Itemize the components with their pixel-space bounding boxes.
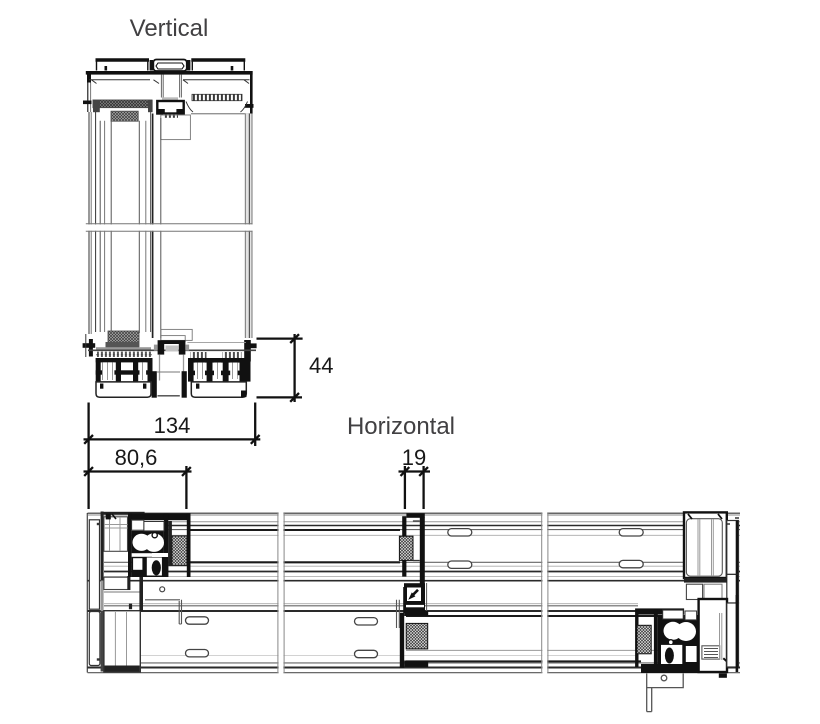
svg-text:44: 44 [309,353,333,378]
svg-text:134: 134 [154,413,191,438]
svg-text:80,6: 80,6 [115,445,158,470]
svg-text:Vertical: Vertical [130,15,209,42]
svg-text:19: 19 [402,445,426,470]
svg-text:Horizontal: Horizontal [347,413,455,440]
